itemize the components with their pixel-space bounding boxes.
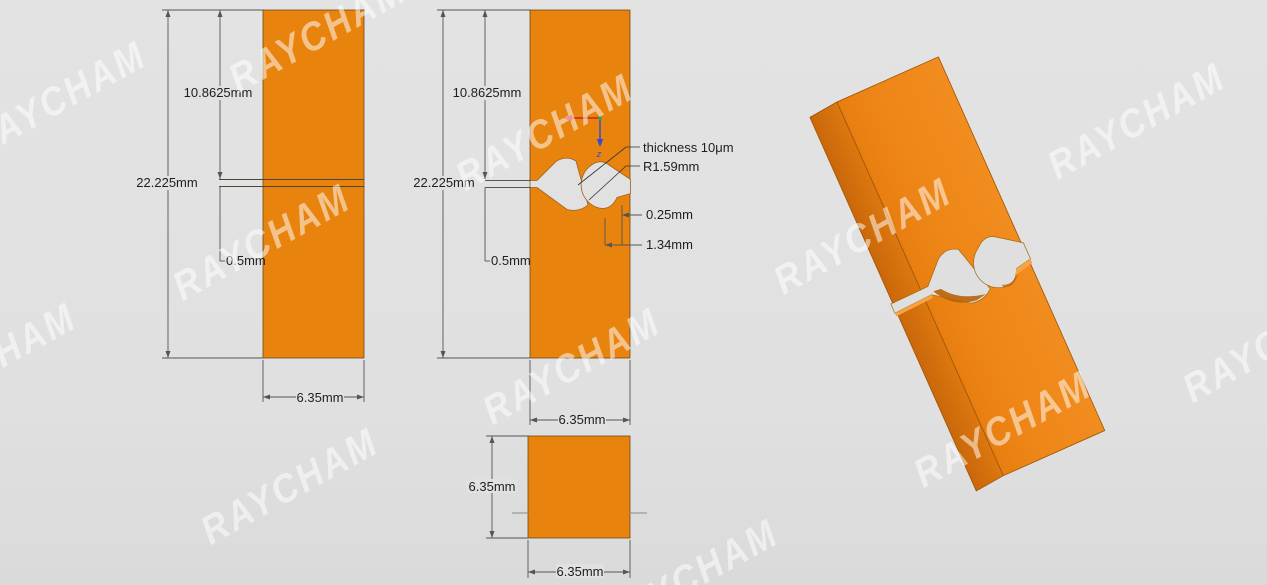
axis-z-label: z [596, 149, 602, 159]
front-view: z 10.8625mm 22.225mm 0.5mm 6.35mm thickn… [413, 10, 733, 427]
dim-label-slot-height: 0.5mm [491, 253, 531, 268]
axis-origin-dot [598, 116, 602, 120]
dim-label-notch-radius: R1.59mm [643, 159, 699, 174]
dim-label-notch-offset: 0.25mm [646, 207, 693, 222]
dim-label-notch-depth: 1.34mm [646, 237, 693, 252]
dim-label-slot-height: 0.5mm [226, 253, 266, 268]
dim-label-ligament-thickness: thickness 10μm [643, 140, 734, 155]
dim-label-total-height: 22.225mm [413, 175, 474, 190]
bottom-view: 6.35mm 6.35mm [466, 436, 647, 579]
bottom-view-specimen-body [528, 436, 630, 538]
dim-label-width: 6.35mm [297, 390, 344, 405]
technical-drawing-canvas: 10.8625mm 22.225mm 0.5mm 6.35mm [0, 0, 1267, 585]
dim-label-height: 6.35mm [469, 479, 516, 494]
dim-label-total-height: 22.225mm [136, 175, 197, 190]
dim-label-upper-height: 10.8625mm [453, 85, 522, 100]
dim-label-upper-height: 10.8625mm [184, 85, 253, 100]
specimen-drawing-page: 10.8625mm 22.225mm 0.5mm 6.35mm [0, 0, 1267, 585]
iso-view [807, 56, 1108, 492]
side-view-specimen-body [263, 10, 364, 358]
side-view: 10.8625mm 22.225mm 0.5mm 6.35mm [136, 10, 364, 405]
dim-label-width: 6.35mm [557, 564, 604, 579]
dim-label-width: 6.35mm [559, 412, 606, 427]
